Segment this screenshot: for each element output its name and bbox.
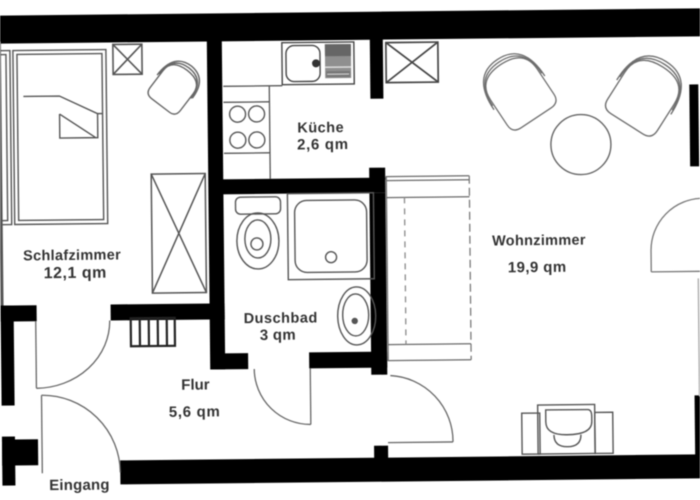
svg-text:3 qm: 3 qm bbox=[260, 327, 296, 344]
svg-text:Wohnzimmer: Wohnzimmer bbox=[492, 233, 586, 250]
svg-text:19,9 qm: 19,9 qm bbox=[508, 259, 567, 277]
svg-text:2,6 qm: 2,6 qm bbox=[297, 136, 349, 154]
svg-text:Schlafzimmer: Schlafzimmer bbox=[23, 247, 121, 264]
svg-text:12,1 qm: 12,1 qm bbox=[44, 265, 107, 283]
svg-text:Duschbad: Duschbad bbox=[244, 310, 318, 327]
svg-text:Küche: Küche bbox=[297, 120, 344, 136]
svg-text:Eingang: Eingang bbox=[49, 477, 110, 495]
svg-text:5,6 qm: 5,6 qm bbox=[169, 403, 221, 421]
svg-text:Flur: Flur bbox=[181, 376, 210, 393]
